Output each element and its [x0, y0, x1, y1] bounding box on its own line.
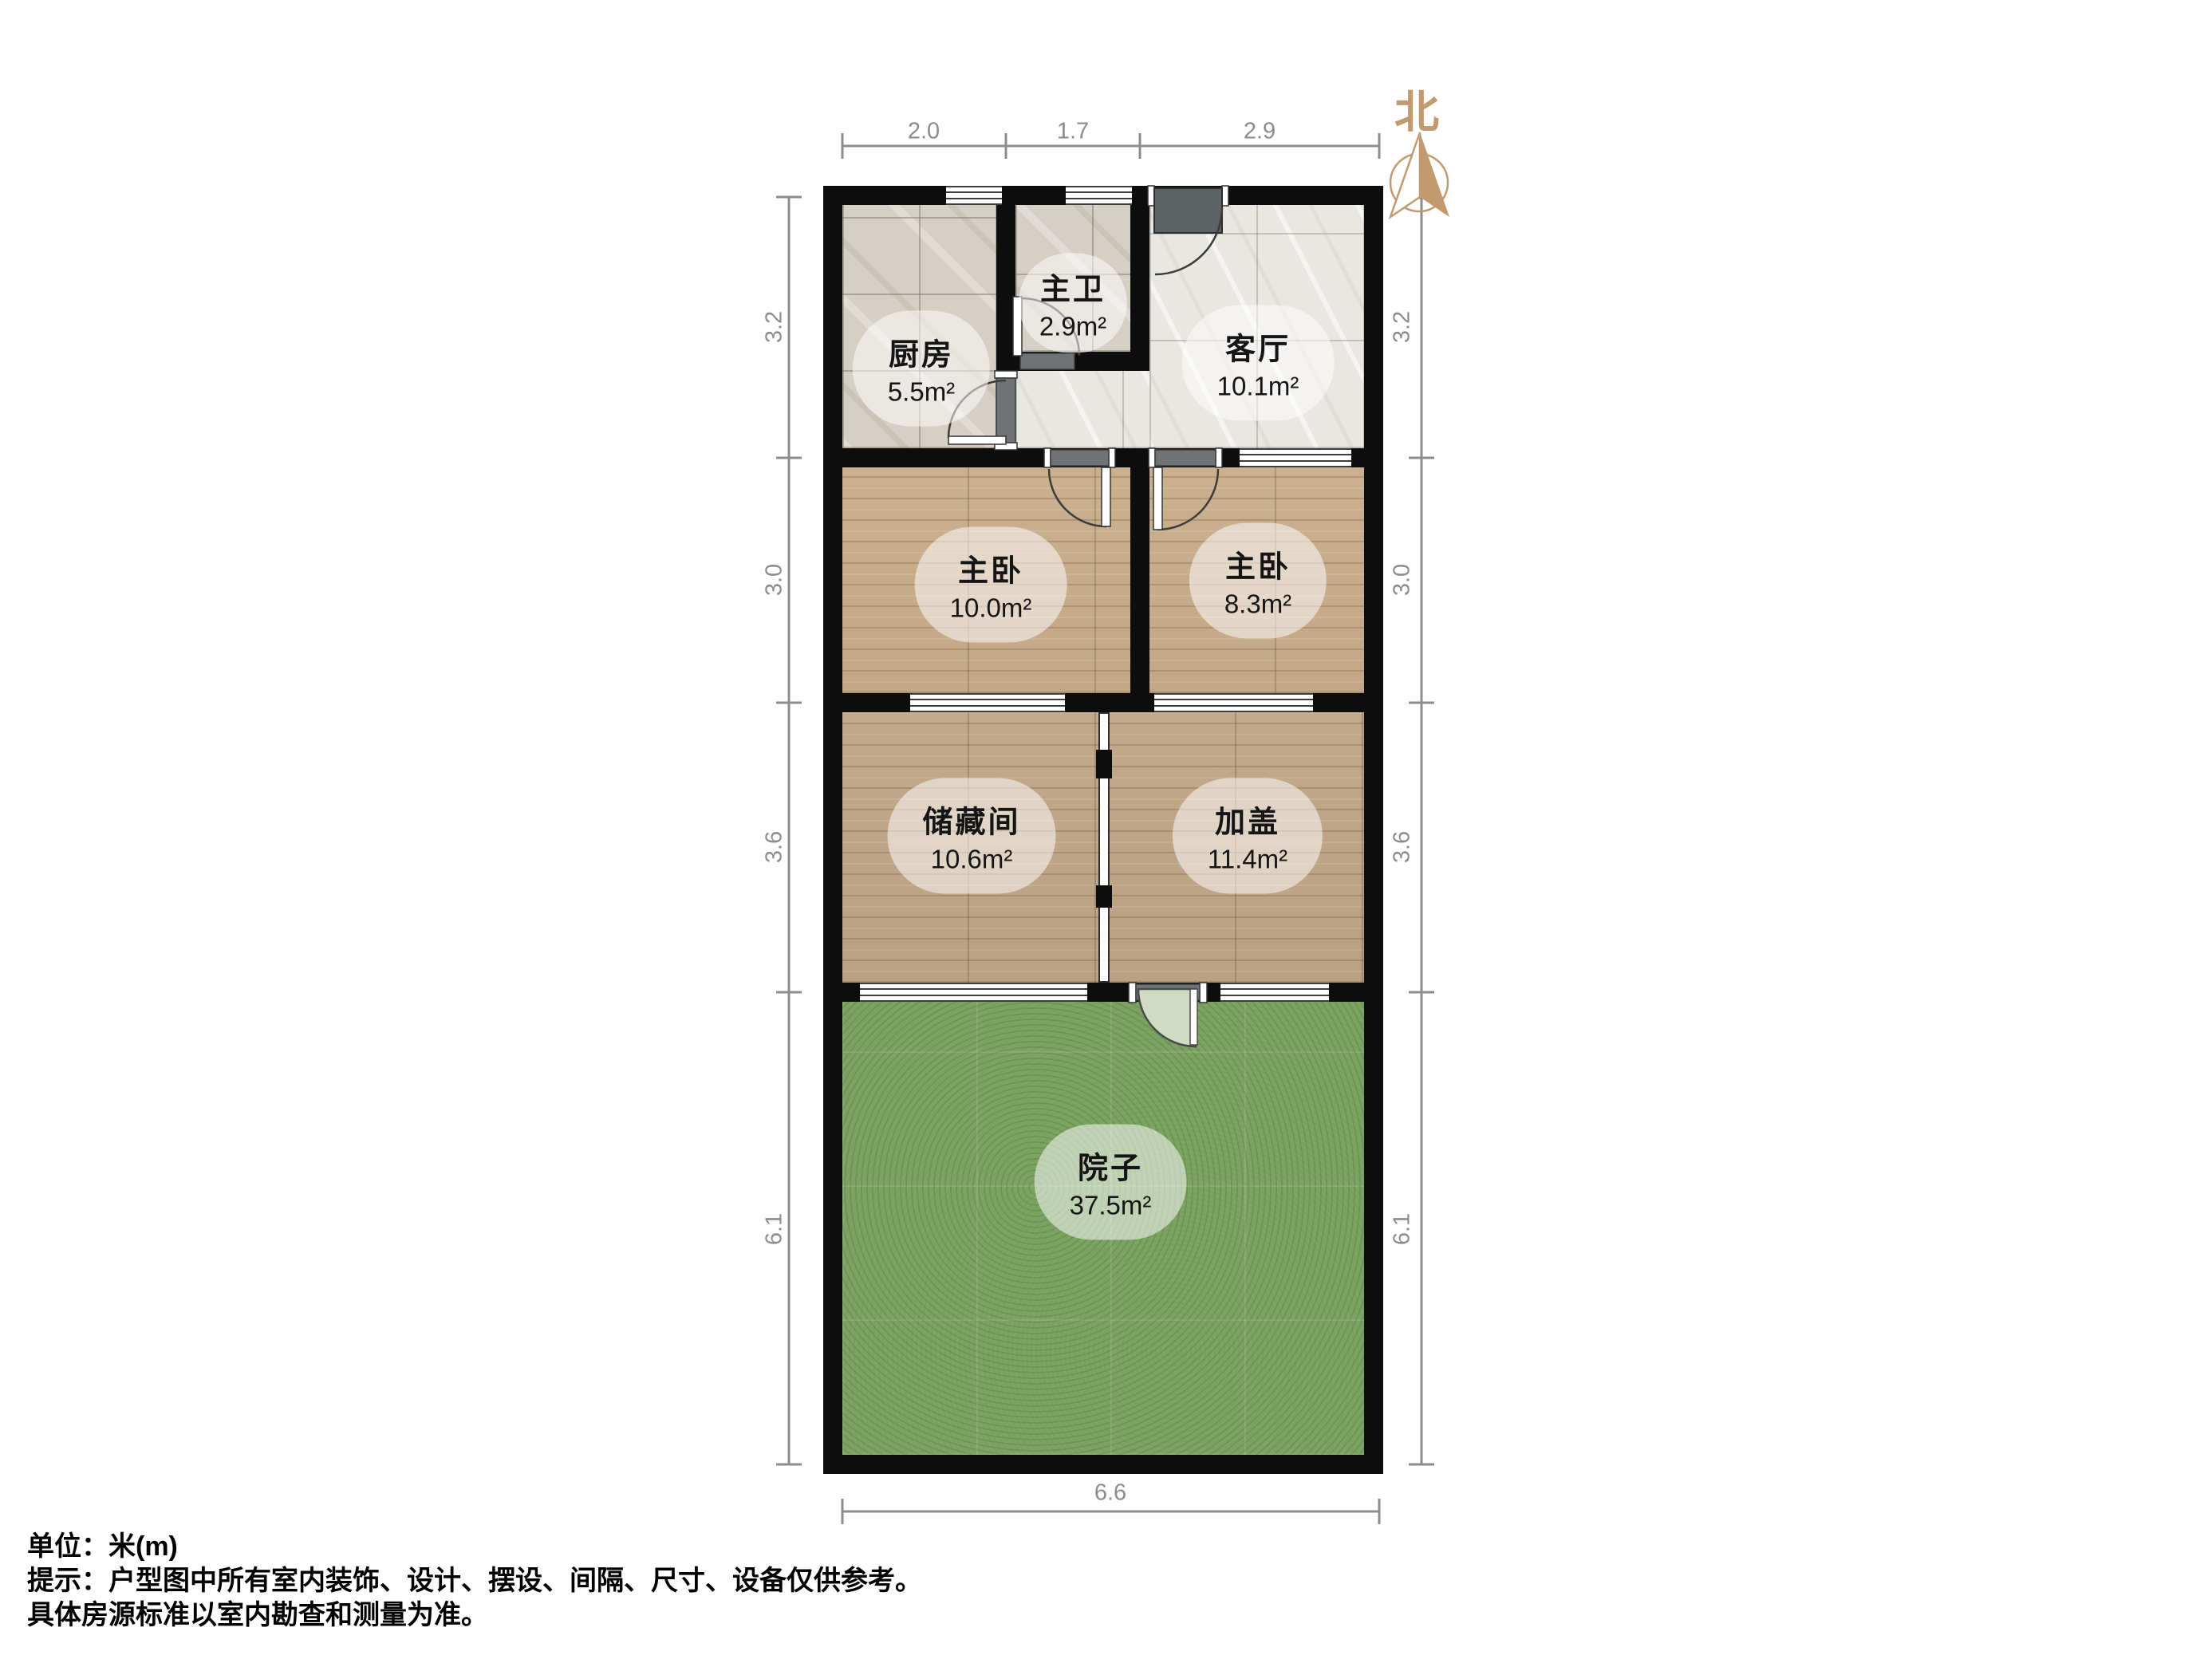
room-name: 客厅 [1217, 325, 1299, 368]
room-label-addition: 加盖 11.4m² [1173, 778, 1323, 894]
room-name: 院子 [1070, 1144, 1152, 1188]
room-area: 10.6m² [922, 845, 1020, 875]
wall-outer-right [1364, 186, 1383, 1474]
window-bathroom-top [1066, 186, 1132, 205]
room-label-kitchen: 厨房 5.5m² [853, 311, 990, 427]
room-area: 10.0m² [950, 593, 1032, 624]
north-label: 北 [1394, 77, 1439, 141]
room-name: 加盖 [1208, 798, 1287, 841]
room-area: 5.5m² [888, 377, 955, 408]
room-label-bedroom-left: 主卧 10.0m² [915, 527, 1067, 643]
room-label-bedroom-right: 主卧 8.3m² [1189, 523, 1327, 639]
window-kitchen-top [946, 186, 1002, 205]
window-living-bedroom [1240, 448, 1351, 467]
footer-disclaimer-line: 具体房源标准以室内勘查和测量为准。 [27, 1598, 922, 1633]
room-name: 主卧 [1224, 542, 1291, 586]
wall-outer-bottom [823, 1455, 1383, 1474]
dim-top-1: 2.0 [908, 119, 940, 145]
room-area: 37.5m² [1070, 1191, 1152, 1221]
hallway-floor [1015, 371, 1149, 448]
room-area: 11.4m² [1208, 845, 1287, 875]
north-compass-icon [1390, 132, 1449, 217]
room-name: 厨房 [888, 330, 955, 374]
footer-disclaimer: 单位：米(m) 提示：户型图中所有室内装饰、设计、摆设、间隔、尺寸、设备仅供参考… [27, 1530, 922, 1632]
floorplan-canvas: 厨房 5.5m² 主卫 2.9m² 客厅 10.1m² 主卧 10.0m² 主卧… [0, 0, 2212, 1659]
room-area: 10.1m² [1217, 372, 1299, 402]
room-area: 8.3m² [1224, 589, 1291, 620]
dim-bottom-1: 6.6 [1094, 1480, 1126, 1507]
room-label-living: 客厅 10.1m² [1182, 305, 1335, 421]
dim-left-3: 3.6 [762, 831, 788, 863]
wall-outer-left [823, 186, 842, 1474]
dim-right-4: 6.1 [1390, 1213, 1416, 1245]
dim-right-3: 3.6 [1390, 831, 1416, 863]
dim-right-1: 3.2 [1390, 311, 1416, 343]
window-storage-yard [860, 983, 1087, 1002]
wall-kitchen-bath [996, 205, 1015, 448]
dim-left-4: 6.1 [762, 1213, 788, 1245]
room-label-yard: 院子 37.5m² [1035, 1125, 1187, 1240]
window-bedroomleft-storage [910, 693, 1065, 712]
room-label-bathroom: 主卫 2.9m² [1019, 254, 1127, 353]
dim-left-1: 3.2 [762, 311, 788, 343]
wall-bedroom-divider [1130, 467, 1149, 693]
dim-right-2: 3.0 [1390, 564, 1416, 596]
window-bedroomright-addition [1154, 693, 1313, 712]
wall-bath-living [1130, 205, 1149, 371]
footer-unit-line: 单位：米(m) [27, 1530, 922, 1564]
room-name: 主卫 [1039, 265, 1106, 309]
room-name: 主卧 [950, 546, 1032, 590]
room-label-storage: 储藏间 10.6m² [887, 778, 1055, 894]
room-area: 2.9m² [1039, 312, 1106, 342]
partition-stub-bottom [1096, 885, 1112, 908]
dim-top-2: 1.7 [1057, 119, 1089, 145]
dim-top-3: 2.9 [1244, 119, 1276, 145]
wall-bath-bottom [996, 352, 1149, 371]
partition-stub-top [1096, 750, 1112, 778]
footer-notice-line: 提示：户型图中所有室内装饰、设计、摆设、间隔、尺寸、设备仅供参考。 [27, 1564, 922, 1598]
room-name: 储藏间 [922, 798, 1020, 841]
dim-left-2: 3.0 [762, 564, 788, 596]
window-addition-yard [1220, 983, 1329, 1002]
